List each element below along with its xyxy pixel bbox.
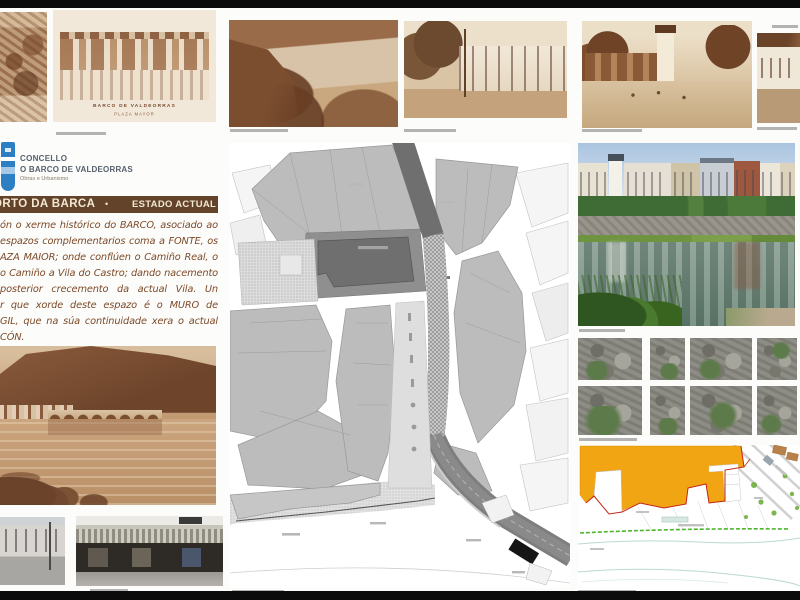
intro-line: posterior crecemento da actual Vila. Un [0, 282, 218, 298]
photo-stone-wall [690, 338, 752, 380]
section-title-bar: ORTO DA BARCA • ESTADO ACTUAL [0, 196, 218, 213]
photo-caption-mark [772, 25, 798, 28]
map-stipple-zone [238, 239, 318, 305]
mountain [0, 346, 216, 413]
shop-panel [132, 548, 151, 567]
rock-outcrop [229, 39, 300, 127]
photo-stone-wall [757, 338, 797, 380]
cadastral-map [230, 143, 570, 588]
tree-trunk [464, 29, 466, 97]
crest-detail [5, 148, 11, 152]
title-bullet: • [105, 196, 108, 212]
postcard-caption-line2: PLAZA MAYOR [92, 112, 177, 117]
map-label-mark [358, 246, 388, 249]
logo-line3: Obras e Urbanismo [20, 175, 142, 181]
house-roof [757, 33, 800, 47]
photo-caption-mark [230, 129, 288, 132]
plaza-buildings [585, 53, 660, 81]
shopfronts [76, 543, 223, 572]
shop-panel [182, 548, 201, 567]
intro-line: GIL, que na súa continuidade xera o actu… [0, 314, 218, 330]
historic-photo-hillside-cut [0, 12, 47, 122]
historic-photo-street [404, 21, 567, 118]
bridge-reflection [48, 419, 162, 435]
shop-panel [88, 548, 109, 567]
photo-town-river-current [578, 143, 795, 326]
map-central-building [318, 237, 414, 287]
crest-band [1, 157, 15, 161]
photo-stone-wall [650, 386, 685, 435]
intro-line: espazos complementarios coma a FONTE, os [0, 234, 218, 250]
intro-paragraph: ón o xerme histórico do BARCO, asociado … [0, 218, 218, 346]
postcard-river-reflection [60, 70, 210, 99]
wet-pavement [76, 572, 223, 586]
house-windows [761, 58, 795, 78]
upper-window [179, 517, 203, 523]
intro-line: r que xorde deste espazo é o MURO de [0, 298, 218, 314]
letterbox-top [0, 0, 800, 8]
photo-caption-mark [579, 438, 637, 441]
photo-caption-mark [582, 129, 642, 132]
photo-caption-mark [56, 132, 106, 135]
photo-street-cut [0, 517, 65, 585]
brick-reflection [734, 242, 760, 290]
foreground-path [726, 308, 795, 326]
photo-stone-wall [757, 386, 797, 435]
screenshot-stage: BARCO DE VALDEORRAS PLAZA MAYOR [0, 0, 800, 600]
intro-line: ón o xerme histórico do BARCO, asociado … [0, 218, 218, 234]
church-tower [657, 31, 674, 82]
letterbox-bottom [0, 591, 800, 600]
foreground-rocks [0, 445, 134, 505]
photo-stone-wall [650, 338, 685, 380]
photo-caption-mark [579, 329, 625, 332]
street-windows [5, 529, 60, 552]
foreground-reeds [578, 275, 682, 326]
historic-photo-plaza-church [582, 21, 752, 128]
zoning-map [578, 445, 800, 591]
historic-photo-house-cut [757, 33, 800, 123]
stone-balustrade [76, 525, 223, 543]
photo-stone-wall [578, 386, 642, 435]
section-title: ORTO DA BARCA [0, 196, 95, 213]
street-pole [49, 522, 51, 570]
historic-photo-river-rocks [229, 20, 398, 127]
intro-line: o Camiño a Vila do Castro; dando nacemen… [0, 266, 218, 282]
section-status: ESTADO ACTUAL [132, 196, 216, 213]
zoning-quay-structure [662, 517, 688, 522]
street-trees [404, 21, 466, 85]
photo-stone-wall [690, 386, 752, 435]
photo-balustrade-building [76, 516, 223, 586]
logo-line1: CONCELLO [20, 153, 216, 164]
concello-logo-text: CONCELLO O BARCO DE VALDEORRAS Obras e U… [20, 153, 216, 185]
map-light-parcel [280, 255, 302, 275]
street-houses [459, 46, 567, 91]
intro-line: AZA MAIOR; onde conflúen o Camiño Real, … [0, 250, 218, 266]
intro-line: CÓN. [0, 330, 218, 346]
postcard-houses [60, 39, 210, 70]
bridge-arches [48, 410, 162, 420]
crest-band [1, 167, 15, 174]
poster-panel: BARCO DE VALDEORRAS PLAZA MAYOR [0, 8, 800, 591]
photo-caption-mark [757, 127, 797, 130]
plaza-ground [582, 81, 752, 128]
postcard-caption-line1: BARCO DE VALDEORRAS [86, 103, 184, 108]
historic-postcard-photo: BARCO DE VALDEORRAS PLAZA MAYOR [53, 10, 216, 122]
logo-line2: O BARCO DE VALDEORRAS [20, 164, 216, 175]
photo-stone-wall [578, 338, 642, 380]
plaza-trees-right [704, 25, 752, 79]
historic-photo-river-bridge [0, 346, 216, 505]
photo-caption-mark [404, 129, 456, 132]
concello-crest-icon [1, 142, 15, 191]
